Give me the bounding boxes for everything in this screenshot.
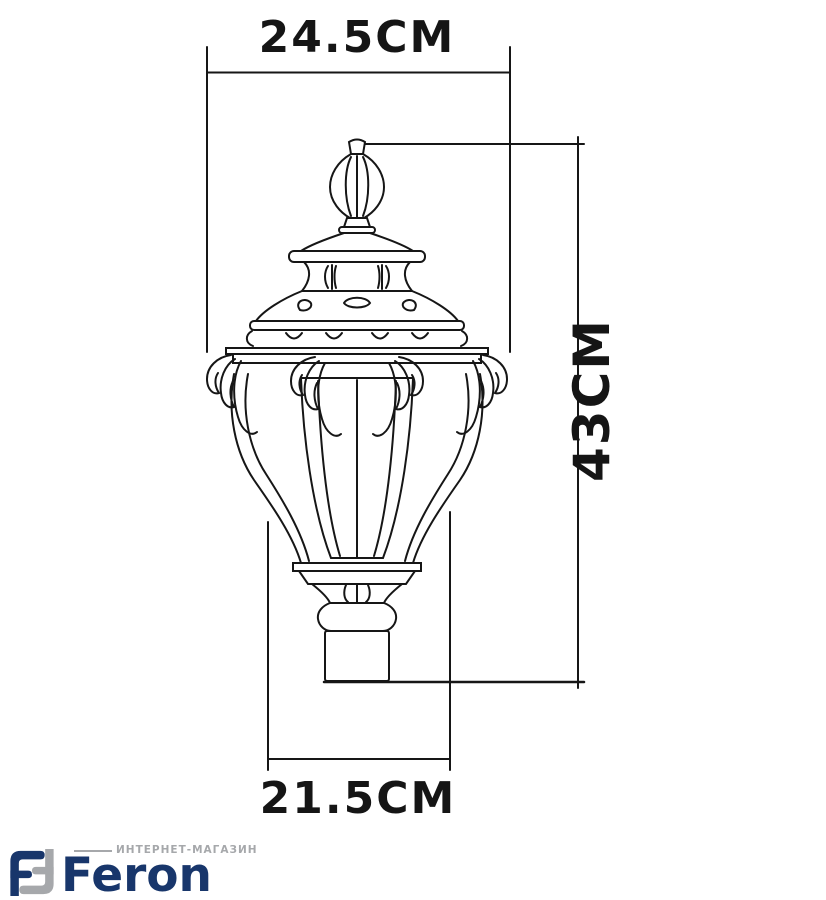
top-plate (226, 348, 488, 363)
lantern-technical-drawing (0, 0, 826, 900)
lantern-outline (207, 140, 507, 682)
finial (330, 140, 384, 234)
feron-logo-icon (8, 849, 56, 896)
post-mount (325, 631, 389, 681)
pedestal (312, 584, 402, 631)
brand-footer: ИНТЕРНЕТ-МАГАЗИН Feron (0, 836, 300, 900)
dimension-height: 43CM (565, 315, 619, 485)
lower-dome (247, 291, 467, 346)
upper-cap (289, 233, 425, 262)
dimension-width-bottom: 21.5CM (210, 773, 506, 824)
crown-drum (302, 262, 412, 291)
dimension-width-top: 24.5CM (207, 12, 507, 63)
base-platform (293, 563, 421, 584)
brand-wordmark: Feron (61, 852, 212, 899)
glass-body (301, 378, 413, 558)
product-dimension-diagram: 24.5CM 43CM 21.5CM ИНТЕРНЕТ-МАГАЗИН Fero… (0, 0, 826, 900)
